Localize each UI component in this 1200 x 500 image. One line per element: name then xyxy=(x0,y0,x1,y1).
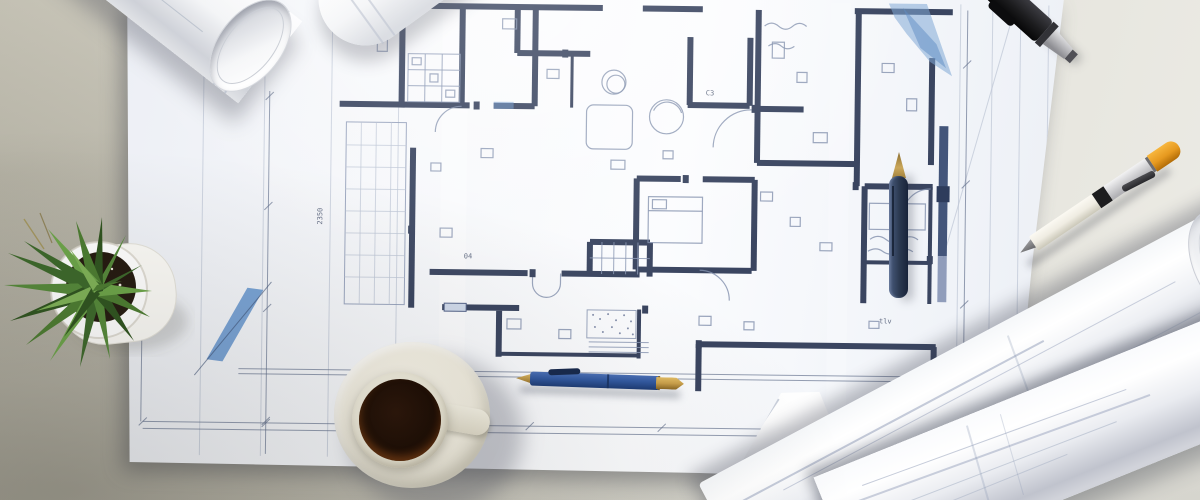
svg-text:04: 04 xyxy=(464,252,473,260)
navy-fountain-pen xyxy=(884,152,914,304)
tube-ring-line xyxy=(339,0,396,36)
plan-walls xyxy=(336,5,953,394)
pen-tip-right xyxy=(656,377,684,390)
svg-text:tlv: tlv xyxy=(879,317,892,325)
plan-labels: 2350 C3 tlv 04 xyxy=(315,85,894,326)
pen-nib xyxy=(892,152,906,178)
potted-plant xyxy=(0,193,195,388)
pen-clip-line xyxy=(892,186,894,256)
svg-text:2350: 2350 xyxy=(316,208,324,225)
pen-clip xyxy=(548,368,580,375)
coffee-liquid xyxy=(359,379,441,461)
desk-scene: 2350 C3 tlv 04 xyxy=(0,0,1200,500)
svg-text:C3: C3 xyxy=(706,89,715,97)
